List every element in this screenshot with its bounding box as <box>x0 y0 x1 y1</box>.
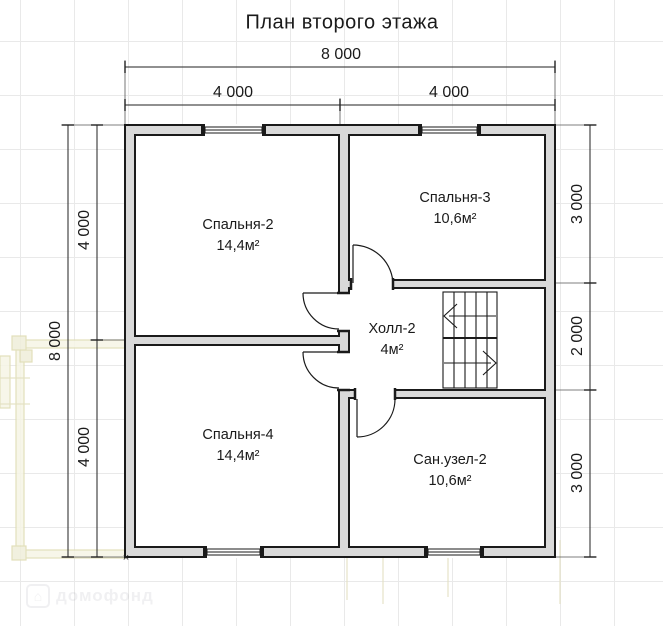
dim-left-seg1: 4 000 <box>76 210 94 250</box>
room-name: Спальня-4 <box>202 425 273 446</box>
window-bottom-left <box>203 546 264 558</box>
room-label-bedroom3: Спальня-3 10,6м² <box>419 188 490 230</box>
house-logo-icon: ⌂ <box>26 584 50 608</box>
room-name: Спальня-3 <box>419 188 490 209</box>
dim-left-total: 8 000 <box>47 321 65 361</box>
dim-right-seg3: 3 000 <box>569 453 587 493</box>
page-title: План второго этажа <box>245 12 438 35</box>
room-label-bedroom2: Спальня-2 14,4м² <box>202 215 273 257</box>
dim-top-seg2: 4 000 <box>429 84 469 102</box>
room-area: 14,4м² <box>202 446 273 467</box>
room-area: 14,4м² <box>202 236 273 257</box>
plan-drawing <box>0 0 663 626</box>
room-name: Холл-2 <box>368 319 415 340</box>
window-top-left <box>201 124 266 136</box>
floor-plan-canvas: План второго этажа 8 000 4 000 4 000 8 0… <box>0 0 663 626</box>
dim-top-seg1: 4 000 <box>213 84 253 102</box>
room-area: 10,6м² <box>419 209 490 230</box>
room-name: Сан.узел-2 <box>413 450 486 471</box>
window-top-right <box>418 124 481 136</box>
room-area: 10,6м² <box>413 471 486 492</box>
room-label-bathroom: Сан.узел-2 10,6м² <box>413 450 486 492</box>
dim-top-total: 8 000 <box>321 46 361 64</box>
dim-left-seg2: 4 000 <box>76 427 94 467</box>
window-bottom-right <box>424 546 484 558</box>
room-area: 4м² <box>368 340 415 361</box>
dim-right-seg1: 3 000 <box>569 184 587 224</box>
dim-right-seg2: 2 000 <box>569 316 587 356</box>
watermark: ⌂ домофонд <box>26 584 154 608</box>
staircase <box>443 292 497 388</box>
corner-marker: × <box>123 552 129 564</box>
watermark-text: домофонд <box>56 586 154 606</box>
room-label-bedroom4: Спальня-4 14,4м² <box>202 425 273 467</box>
room-name: Спальня-2 <box>202 215 273 236</box>
room-label-hall: Холл-2 4м² <box>368 319 415 361</box>
